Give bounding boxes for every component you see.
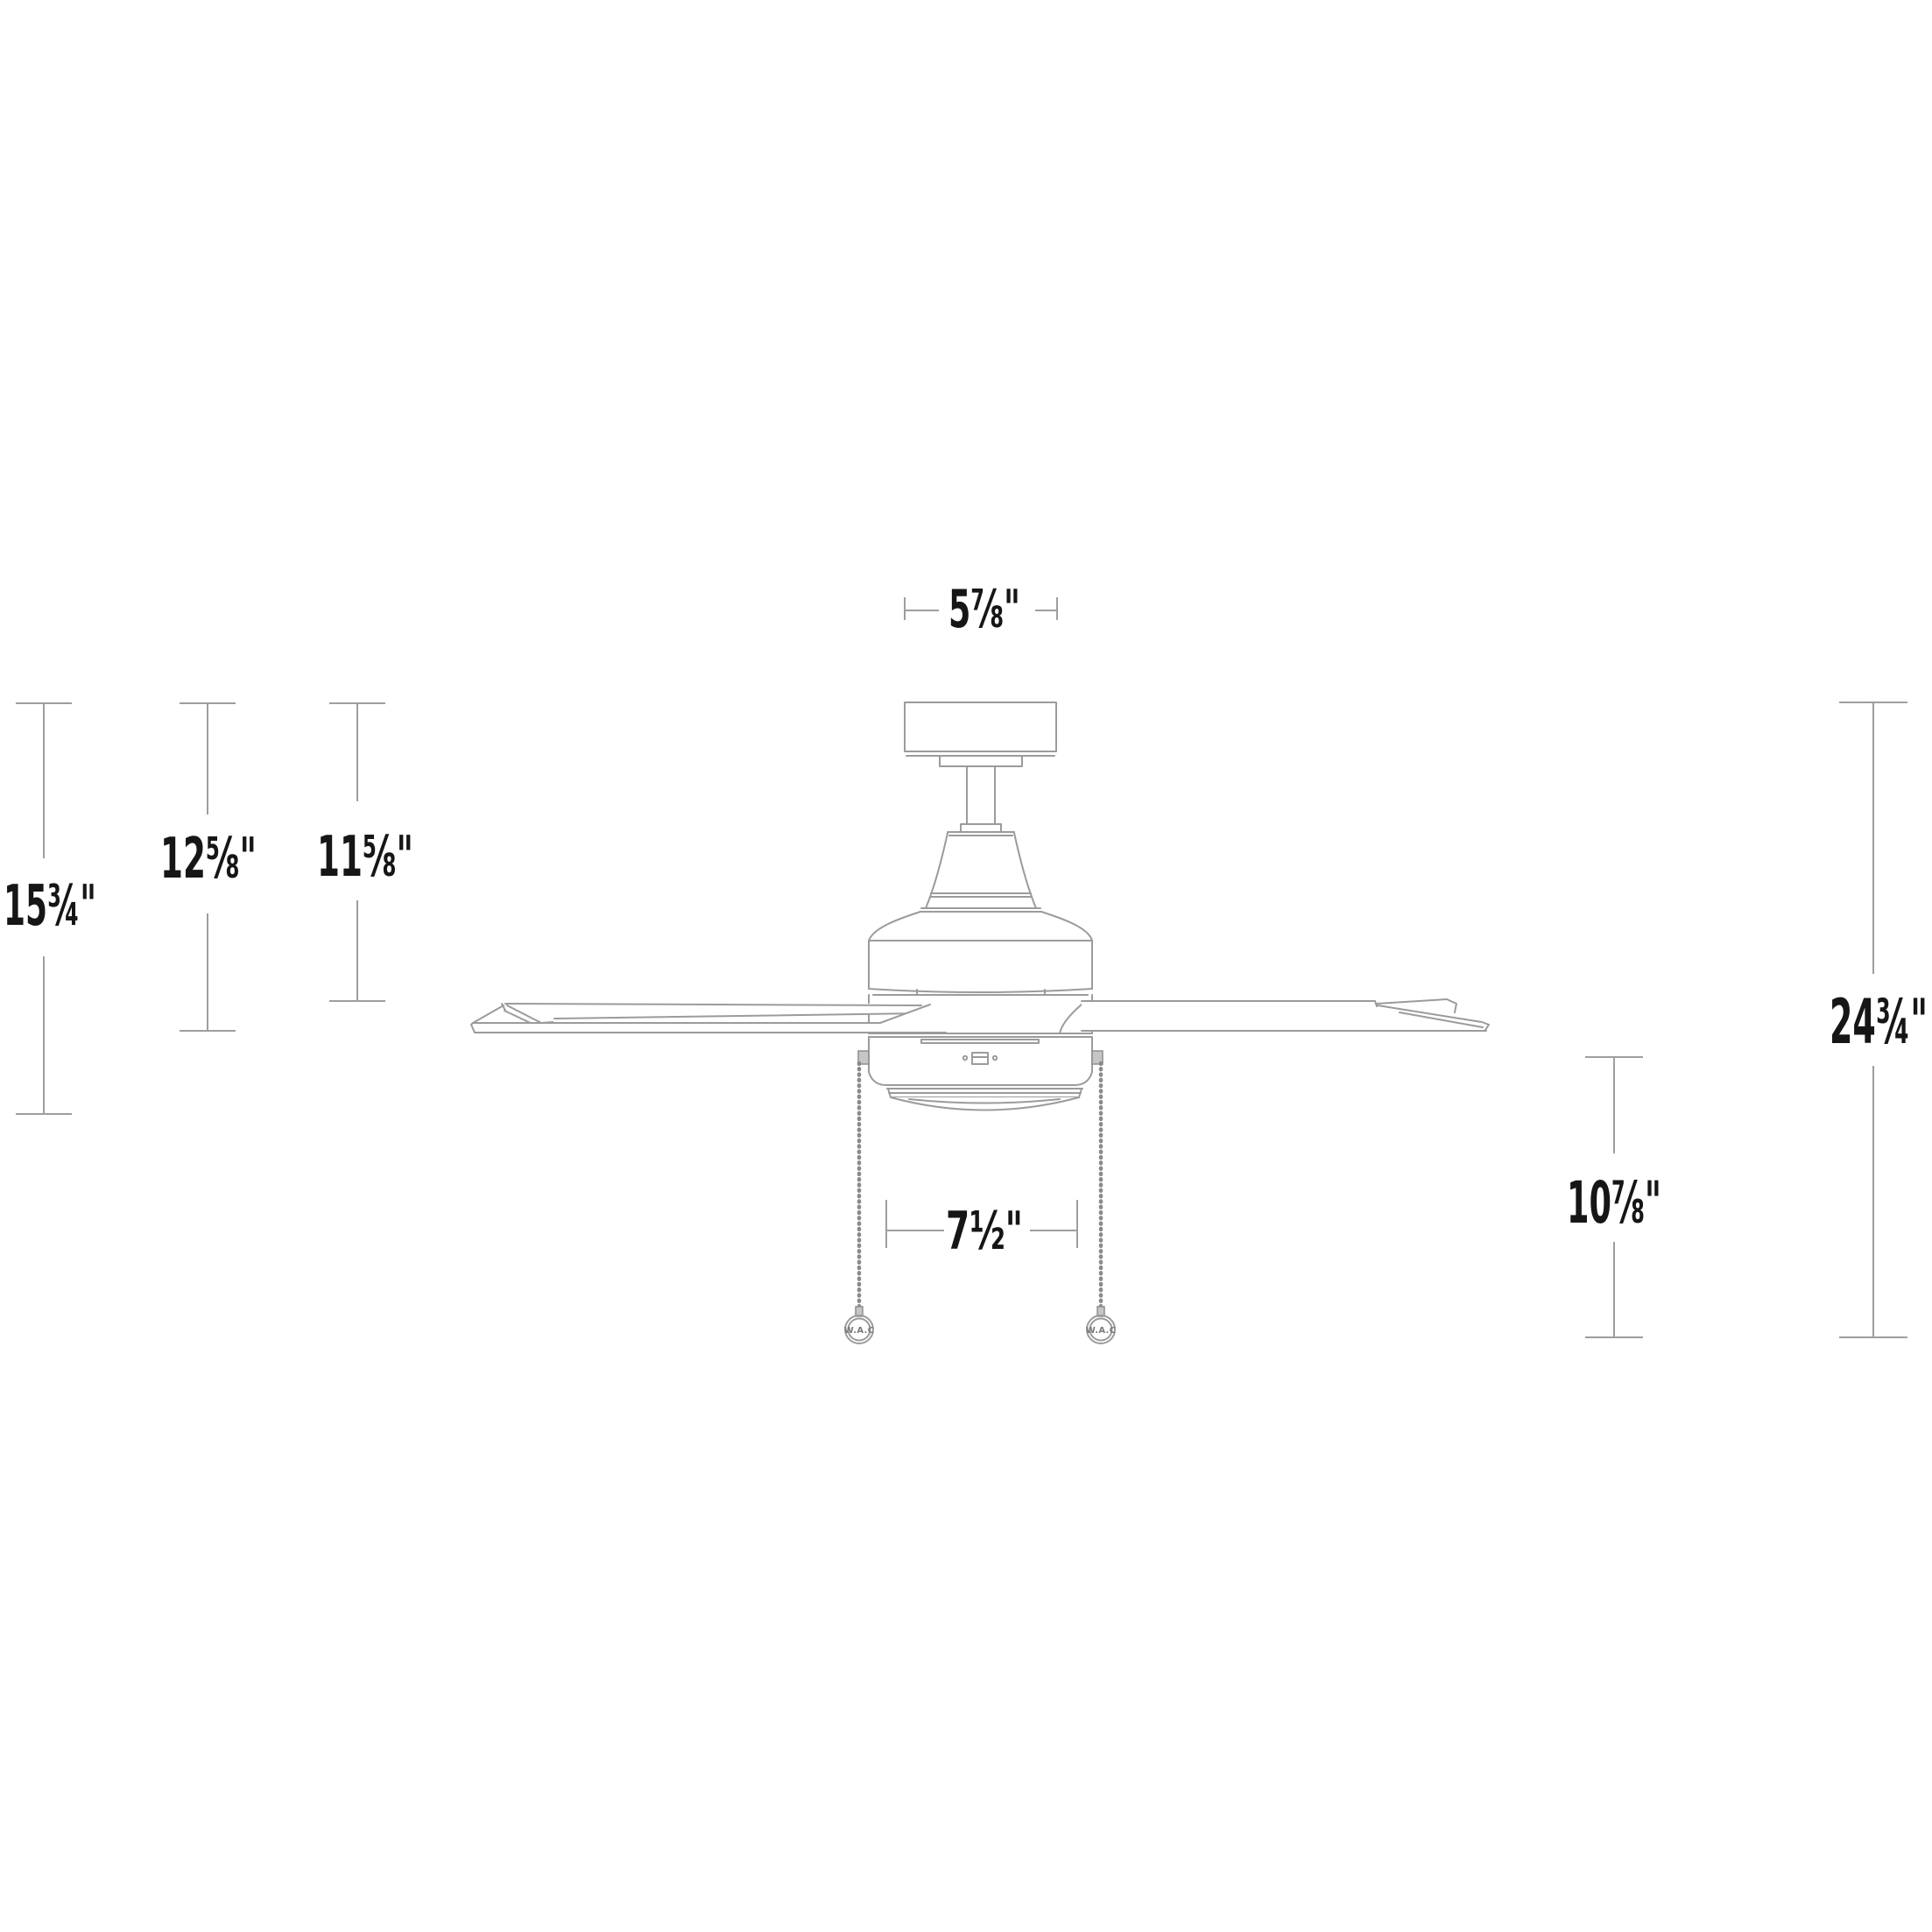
diagram-canvas: W.A.C W.A.C 5⅞" 15¾" 12⅝" 11⅝" <box>0 0 1932 1932</box>
blade-right <box>1082 998 1489 1032</box>
dimension-label-right-overall: 24¾" <box>1830 986 1928 1058</box>
fan-blades <box>471 998 1489 1033</box>
dimension-top-width: 5⅞" <box>905 579 1057 640</box>
dimension-label-left-middle: 12⅝" <box>160 827 257 892</box>
switch-housing <box>858 1033 1103 1085</box>
fan-dimension-diagram: W.A.C W.A.C 5⅞" 15¾" 12⅝" 11⅝" <box>0 0 1932 1932</box>
downrod-tube <box>967 766 995 824</box>
wac-tag-left-label: W.A.C <box>844 1326 875 1336</box>
wac-tag-right-label: W.A.C <box>1086 1326 1117 1336</box>
pull-chain-left: W.A.C <box>844 1063 875 1343</box>
downrod-coupler <box>961 824 1001 832</box>
dimension-label-left-inner: 11⅝" <box>317 825 413 890</box>
dimension-label-left-outer: 15¾" <box>4 874 96 939</box>
dimension-bottom-width: 7½" <box>886 1200 1077 1262</box>
dimension-label-right-lower: 10⅞" <box>1567 1169 1661 1237</box>
dimension-left-outer: 15¾" <box>4 703 96 1114</box>
light-kit <box>887 1089 1082 1111</box>
pull-chain-right: W.A.C <box>1086 1063 1117 1343</box>
dimension-label-bottom-width: 7½" <box>946 1201 1023 1262</box>
hub-fillet-right <box>1060 1004 1082 1033</box>
switch-dot-left <box>963 1056 967 1060</box>
canopy <box>905 702 1056 766</box>
downrod <box>961 766 1001 832</box>
canopy-body <box>905 702 1056 751</box>
dimension-left-middle: 12⅝" <box>160 703 257 1031</box>
dimension-label-top-width: 5⅞" <box>948 579 1020 640</box>
canopy-collar <box>940 756 1022 766</box>
mount-bell <box>869 832 1092 941</box>
dimension-right-lower: 10⅞" <box>1567 1057 1661 1337</box>
switch-dot-right <box>993 1056 997 1060</box>
reverse-switch <box>963 1053 997 1064</box>
dimension-right-overall: 24¾" <box>1830 702 1928 1337</box>
dimension-left-inner: 11⅝" <box>317 703 413 1001</box>
